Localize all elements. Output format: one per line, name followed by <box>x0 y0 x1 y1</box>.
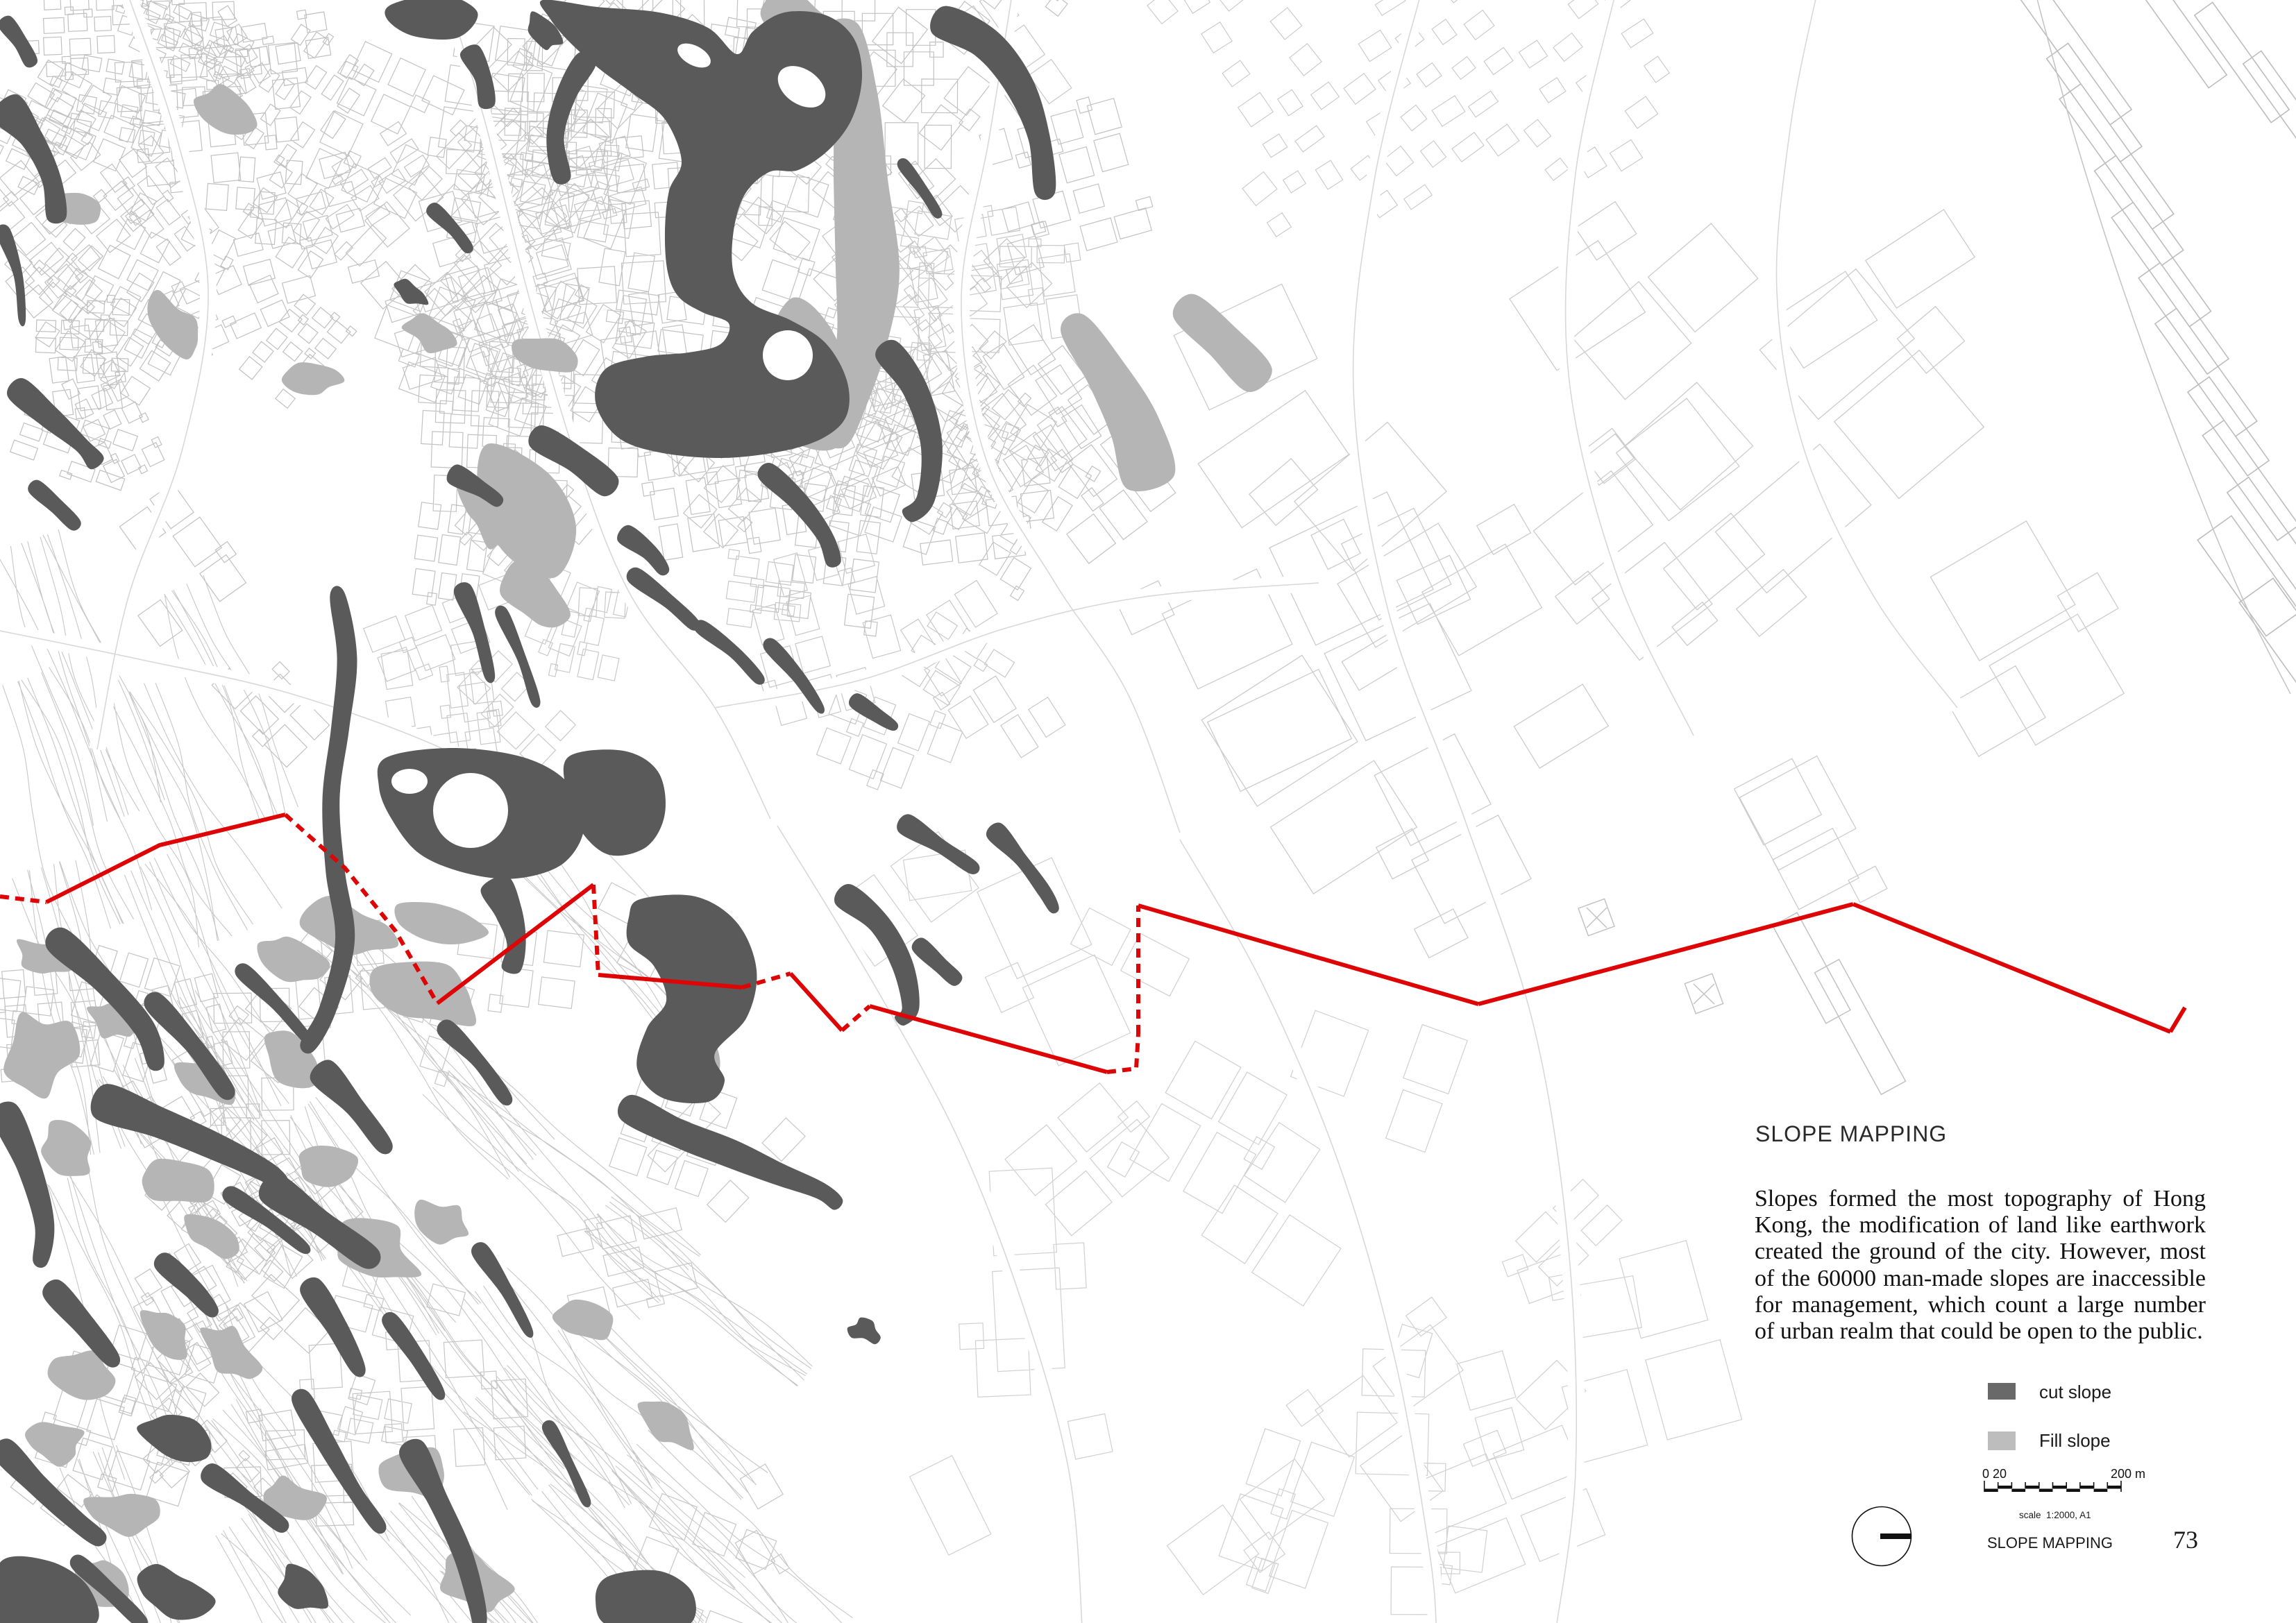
svg-text:0: 0 <box>1982 1467 1989 1481</box>
svg-text:200 m: 200 m <box>2111 1467 2145 1481</box>
svg-text:20: 20 <box>1993 1467 2007 1481</box>
